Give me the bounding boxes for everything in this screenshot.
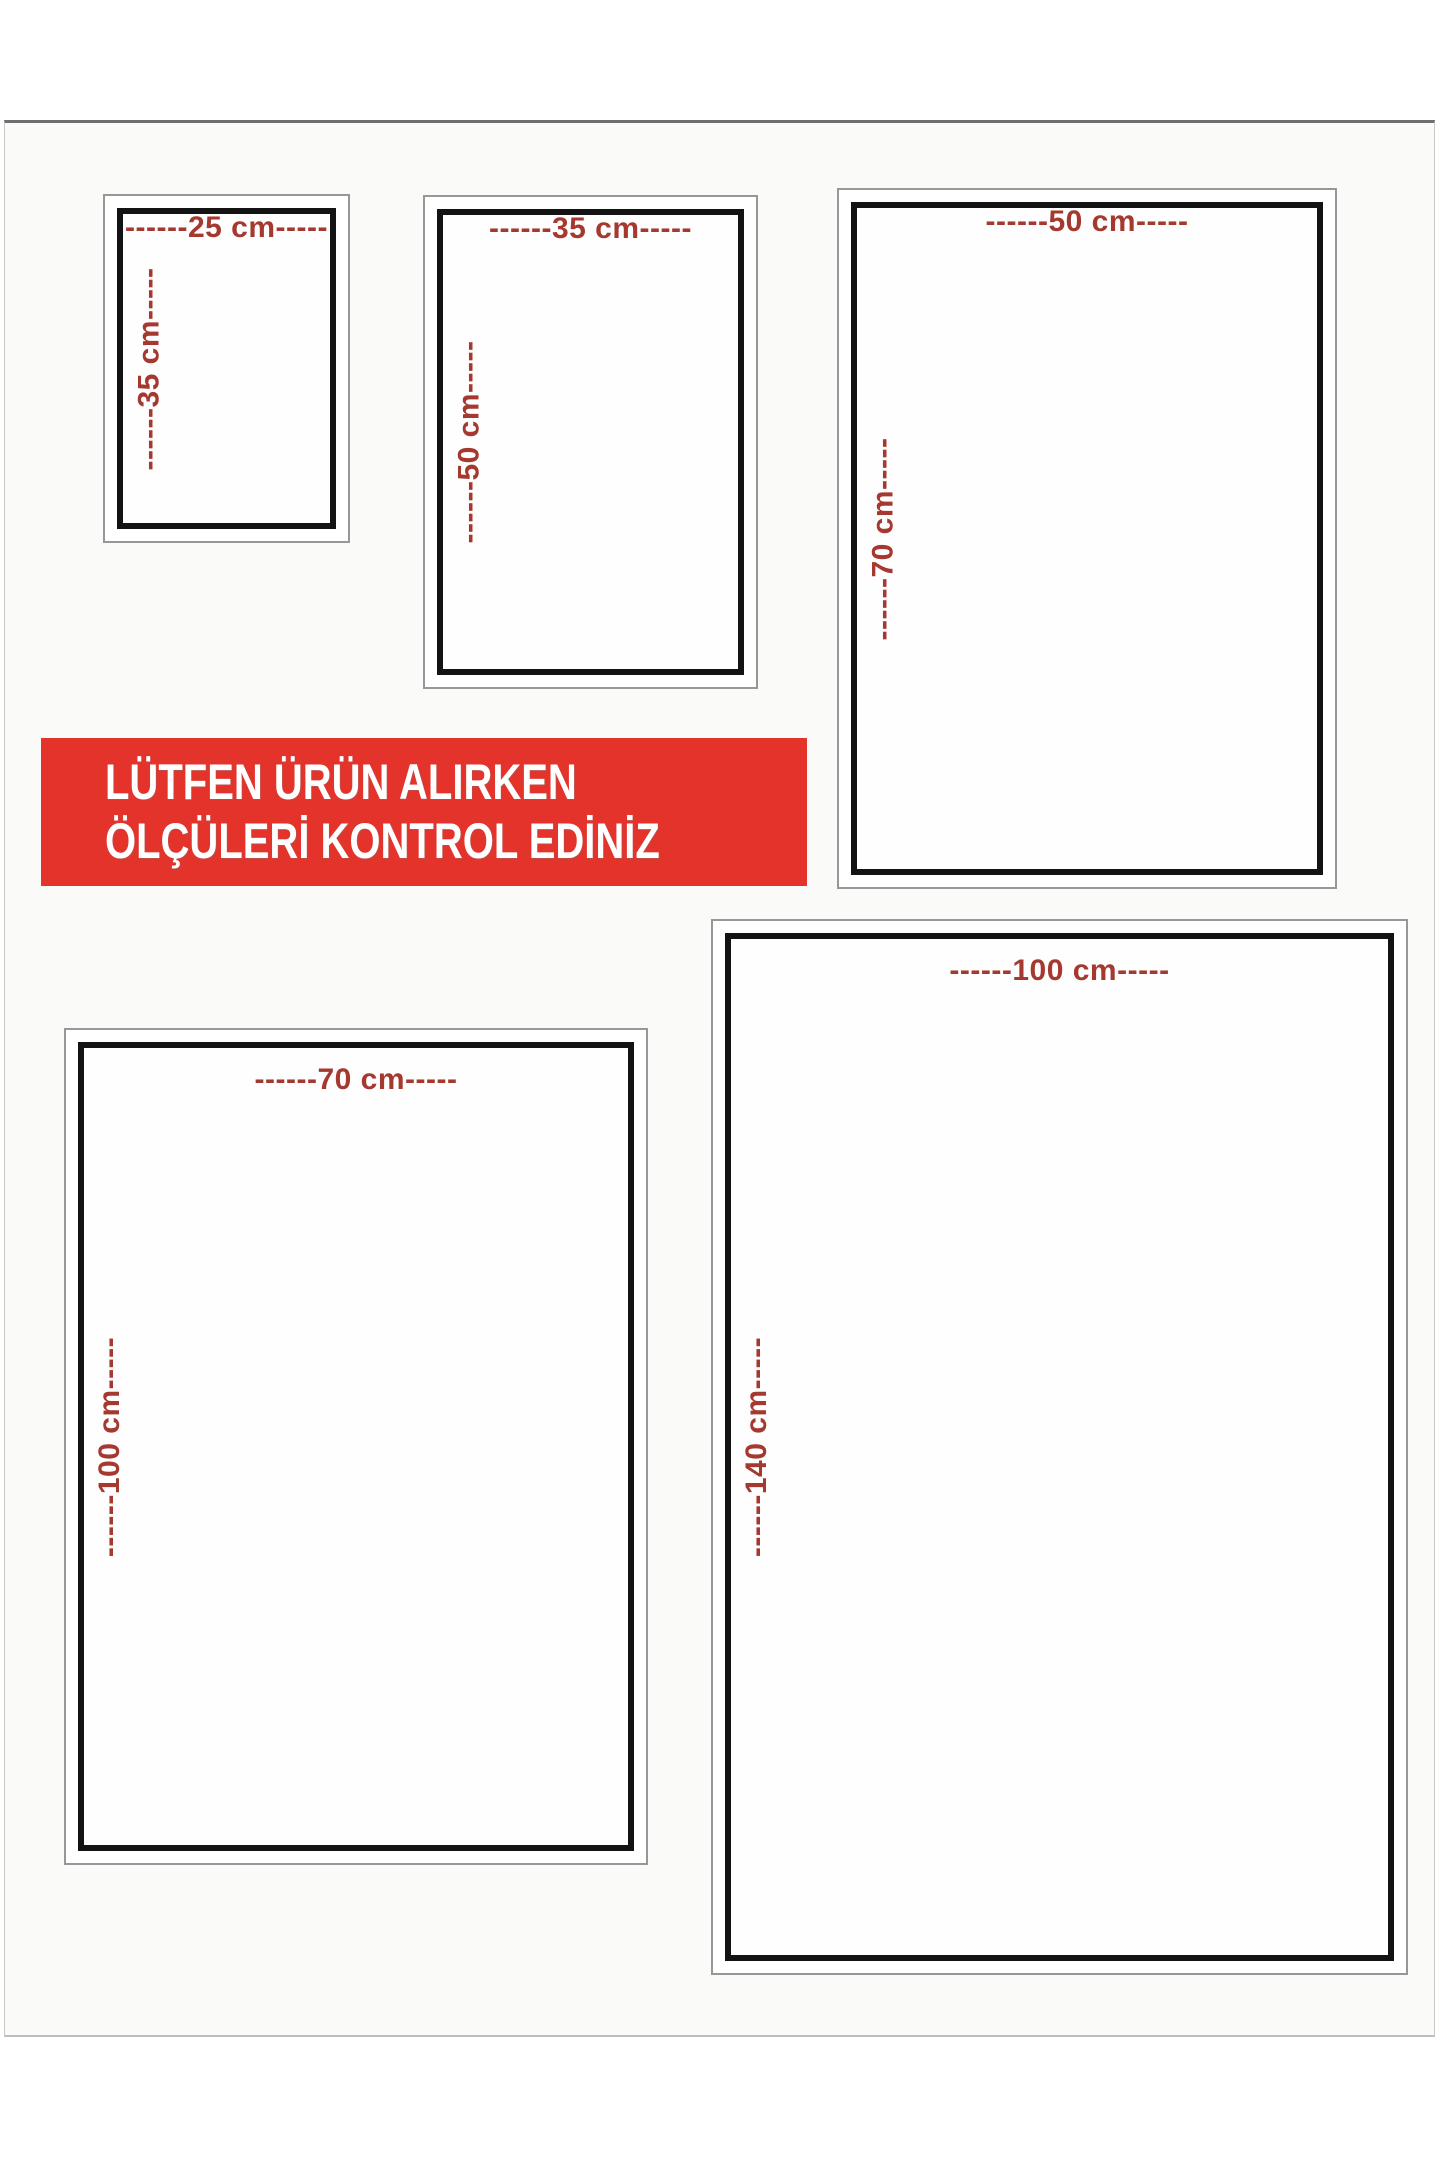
height-dimension-label: ------50 cm----- xyxy=(451,215,487,669)
size-box-100x140-inner: ------100 cm----- ------140 cm----- xyxy=(725,933,1394,1961)
size-box-50x70-inner: ------50 cm----- ------70 cm----- xyxy=(851,202,1323,875)
height-dimension-label: ------140 cm----- xyxy=(739,939,775,1955)
warning-banner-line-1: LÜTFEN ÜRÜN ALIRKEN xyxy=(105,753,667,812)
height-dimension-text: ------50 cm----- xyxy=(452,341,486,544)
size-box-100x140: ------100 cm----- ------140 cm----- xyxy=(711,919,1408,1975)
height-dimension-label: ------100 cm----- xyxy=(92,1048,128,1845)
size-box-70x100-inner: ------70 cm----- ------100 cm----- xyxy=(78,1042,634,1851)
size-box-70x100: ------70 cm----- ------100 cm----- xyxy=(64,1028,648,1865)
height-dimension-text: ------70 cm----- xyxy=(866,437,900,640)
width-dimension-label: ------35 cm----- xyxy=(443,212,738,246)
size-chart-canvas: ------25 cm----- ------35 cm----- ------… xyxy=(0,0,1440,2160)
width-dimension-label: ------100 cm----- xyxy=(731,954,1388,988)
warning-banner-line-2: ÖLÇÜLERİ KONTROL EDİNİZ xyxy=(105,812,667,871)
warning-banner: LÜTFEN ÜRÜN ALIRKEN ÖLÇÜLERİ KONTROL EDİ… xyxy=(41,738,807,886)
size-box-35x50-inner: ------35 cm----- ------50 cm----- xyxy=(437,209,744,675)
height-dimension-text: ------140 cm----- xyxy=(740,1337,774,1557)
height-dimension-label: ------70 cm----- xyxy=(865,208,901,869)
width-dimension-label: ------70 cm----- xyxy=(84,1063,628,1097)
size-box-35x50: ------35 cm----- ------50 cm----- xyxy=(423,195,758,689)
height-dimension-text: ------35 cm----- xyxy=(132,267,166,470)
height-dimension-text: ------100 cm----- xyxy=(93,1336,127,1556)
height-dimension-label: ------35 cm----- xyxy=(131,214,167,523)
size-box-25x35-inner: ------25 cm----- ------35 cm----- xyxy=(117,208,336,529)
size-box-25x35: ------25 cm----- ------35 cm----- xyxy=(103,194,350,543)
width-dimension-label: ------50 cm----- xyxy=(857,205,1317,239)
size-box-50x70: ------50 cm----- ------70 cm----- xyxy=(837,188,1337,889)
